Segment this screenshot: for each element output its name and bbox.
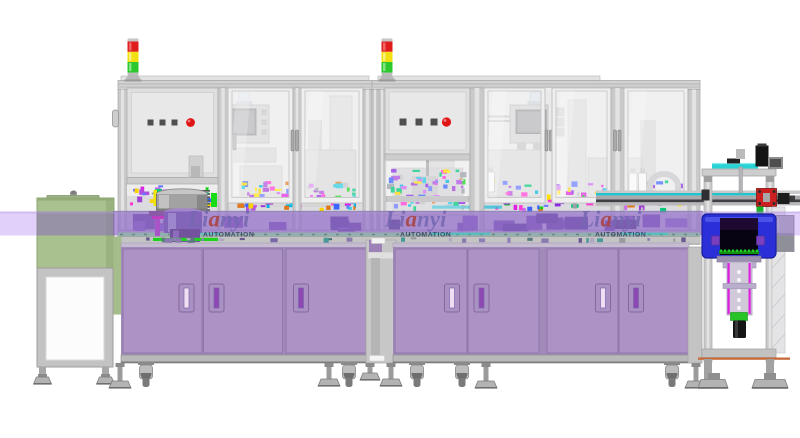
svg-text:Lianyi: Lianyi bbox=[187, 207, 250, 232]
svg-text:AUTOMATION: AUTOMATION bbox=[203, 231, 254, 238]
svg-text:Lianyi: Lianyi bbox=[579, 207, 642, 232]
svg-text:AUTOMATION: AUTOMATION bbox=[595, 231, 646, 238]
svg-text:Lianyi: Lianyi bbox=[384, 207, 447, 232]
svg-text:AUTOMATION: AUTOMATION bbox=[400, 231, 451, 238]
